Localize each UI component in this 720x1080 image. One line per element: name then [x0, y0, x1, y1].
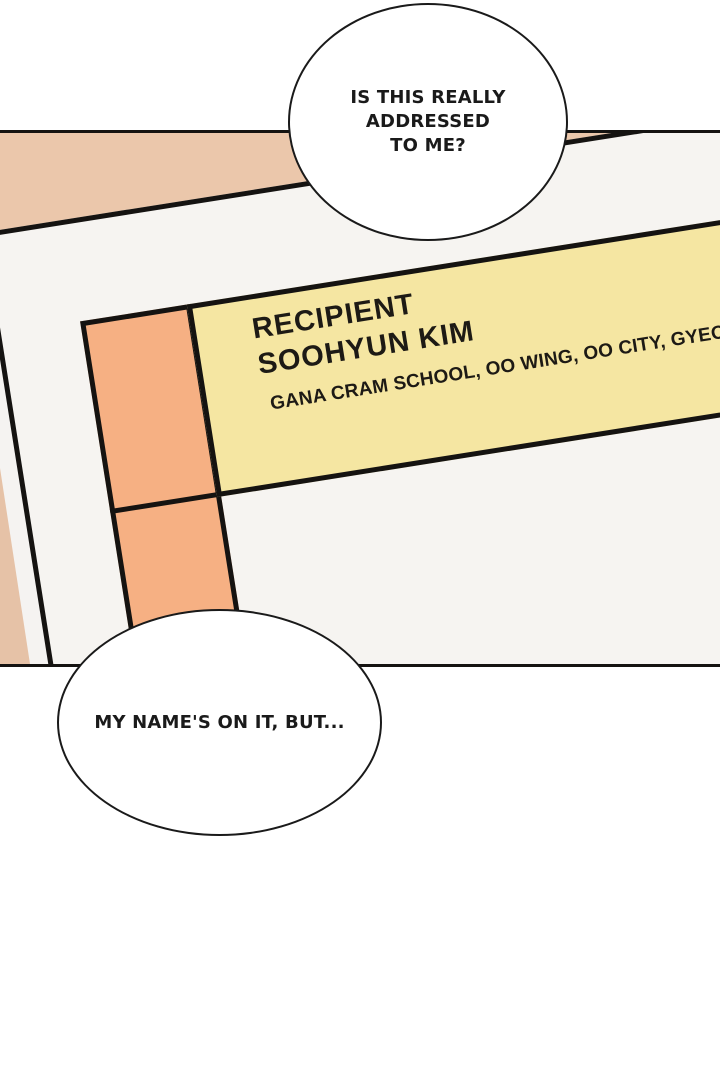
speech-bubble-top: IS THIS REALLY ADDRESSED TO ME? [288, 3, 568, 241]
speech-bubble-bottom-text: MY NAME'S ON IT, BUT... [94, 711, 344, 735]
speech-bubble-top-text: IS THIS REALLY ADDRESSED TO ME? [350, 86, 505, 158]
speech-bubble-bottom: MY NAME'S ON IT, BUT... [57, 609, 382, 836]
address-label: RECIPIENT SOOHYUN KIM GANA CRAM SCHOOL, … [187, 195, 720, 497]
stamp-divider-line [110, 492, 221, 514]
